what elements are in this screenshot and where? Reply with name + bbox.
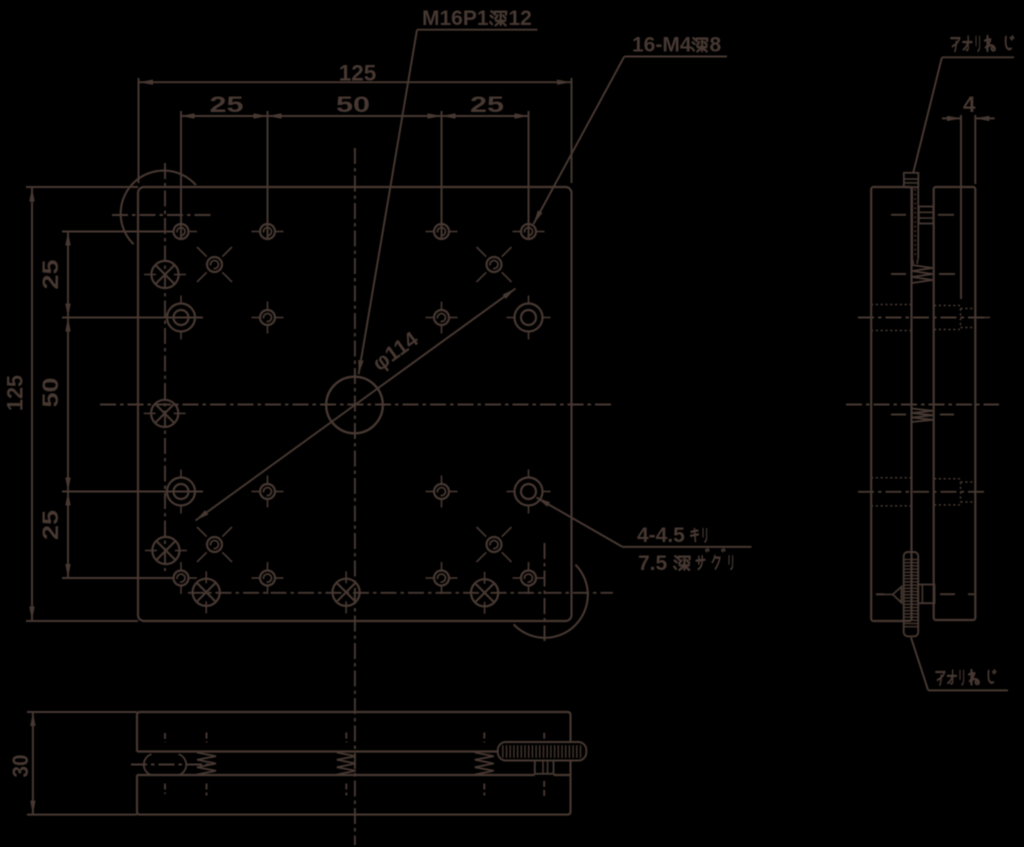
svg-text:25: 25 [38, 510, 63, 540]
svg-text:4: 4 [963, 92, 976, 117]
svg-text:50: 50 [336, 92, 370, 117]
svg-text:50: 50 [38, 378, 63, 408]
svg-text:30: 30 [8, 755, 33, 778]
svg-text:8: 8 [710, 34, 722, 57]
svg-text:4-4.5: 4-4.5 [637, 524, 685, 547]
svg-text:16-M4: 16-M4 [632, 34, 692, 57]
svg-text:25: 25 [38, 260, 63, 290]
svg-text:125: 125 [339, 61, 377, 86]
svg-text:7.5: 7.5 [638, 552, 668, 575]
svg-text:25: 25 [470, 92, 504, 117]
svg-text:125: 125 [3, 375, 28, 411]
svg-text:25: 25 [210, 92, 244, 117]
svg-text:12: 12 [509, 7, 532, 30]
svg-text:M16P1: M16P1 [422, 7, 489, 30]
